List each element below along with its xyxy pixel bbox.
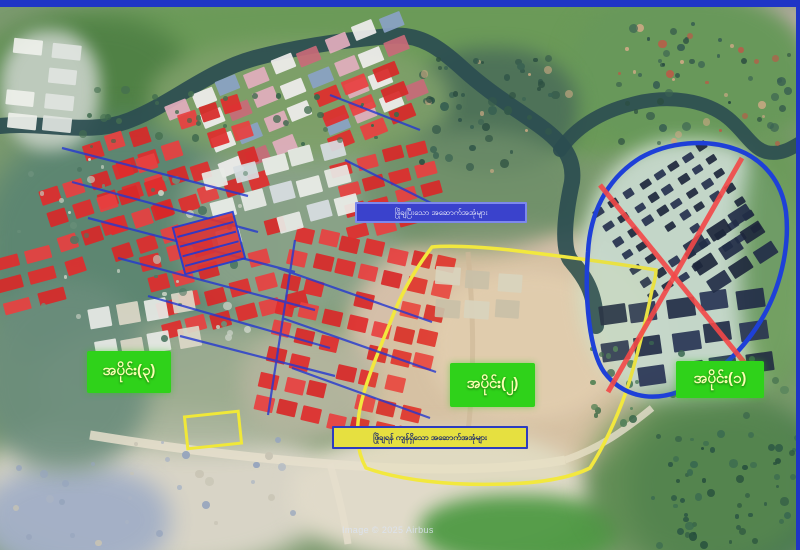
imagery-watermark: Image © 2025 Airbus [342,525,434,535]
satellite-map: အပိုင်း(၃) အပိုင်း(၂) အပိုင်း(၁) ဖြိုချပ… [0,0,800,550]
section-label-3: အပိုင်း(၃) [87,351,171,393]
section-label-2: အပိုင်း(၂) [450,363,535,407]
banner-remaining: ဖြိုချရန် ကျန်ရှိသော အဆောက်အအုံများ [332,426,528,449]
banner-demolished: ဖြိုချပြီးသော အဆောက်အအုံများ [355,202,527,223]
section-label-1: အပိုင်း(၁) [676,361,764,398]
